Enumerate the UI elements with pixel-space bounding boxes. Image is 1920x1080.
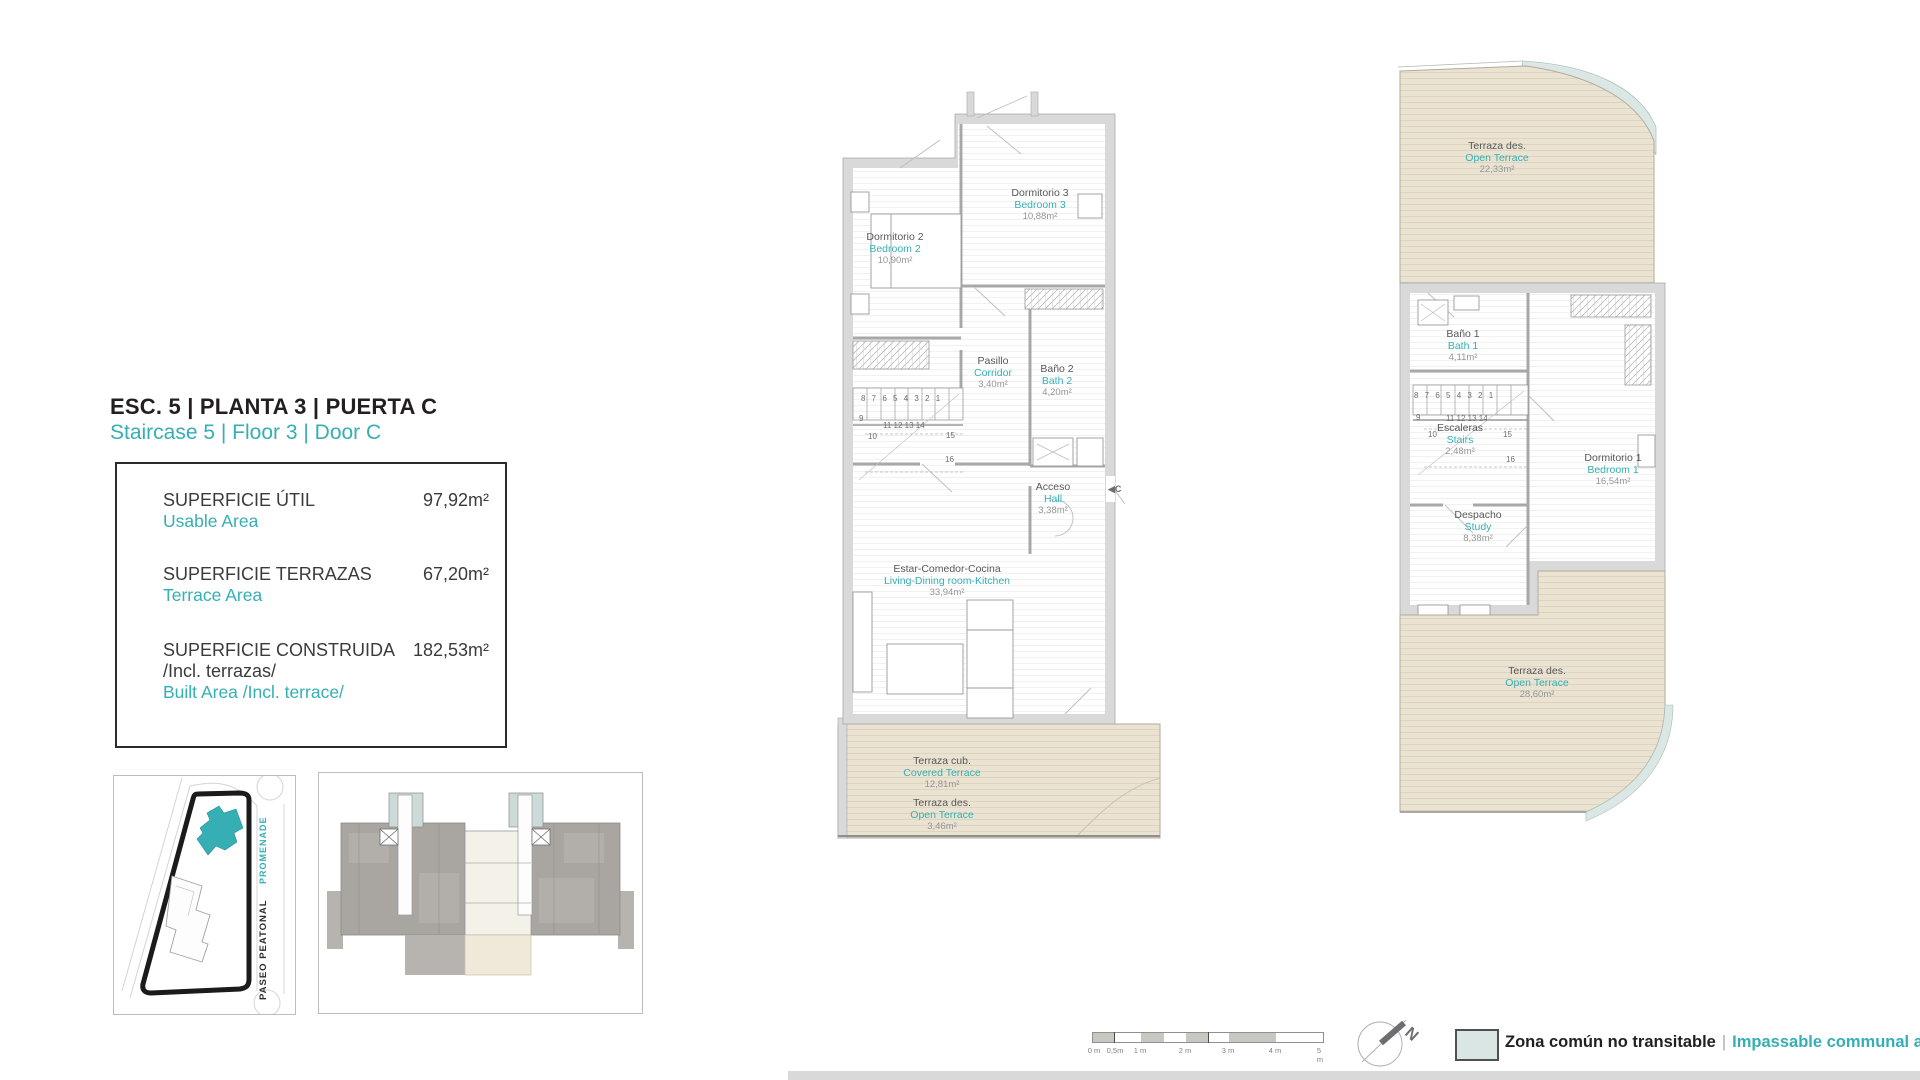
scale-label-4m: 4 m: [1269, 1046, 1282, 1055]
sideboard: [853, 592, 872, 692]
scale-label-05m: 0,5m: [1107, 1046, 1124, 1055]
usable-area-row: SUPERFICIE ÚTIL Usable Area 97,92m²: [163, 490, 489, 532]
room-label-bath1: Baño 1 Bath 1 4,11m²: [1446, 329, 1479, 364]
communal-area-swatch: [1455, 1029, 1499, 1061]
entrance-door-c-icon: ◀C: [1108, 484, 1121, 495]
terrace-area-fill: [838, 724, 1160, 838]
room-label-study: Despacho Study 8,38m²: [1454, 510, 1501, 545]
scale-label-5m: 5 m: [1317, 1046, 1323, 1064]
scale-label-0m: 0 m: [1088, 1046, 1101, 1055]
stair-numbers-top-upper: 8 7 6 5 4 3 2 1: [1414, 391, 1514, 400]
room-label-open-terrace: Terraza des. Open Terrace 3,46m²: [910, 798, 973, 833]
legend-separator: |: [1716, 1033, 1732, 1051]
stair-numbers-mid-upper: 11 12 13 14: [1446, 414, 1488, 423]
stair-number-15: 15: [946, 431, 955, 440]
upper-floor-plan: Terraza des. Open Terrace 22,33m² Baño 1…: [1388, 55, 1728, 850]
terrace-area-value: 67,20m²: [423, 564, 489, 585]
room-label-open-terrace-bottom: Terraza des. Open Terrace 28,60m²: [1505, 666, 1568, 701]
room-label-hall: Acceso Hall 3,38m²: [1036, 482, 1070, 517]
key-plan-drawing: [319, 773, 642, 1013]
surface-areas-box: SUPERFICIE ÚTIL Usable Area 97,92m² SUPE…: [115, 462, 507, 748]
usable-area-value: 97,92m²: [423, 490, 489, 511]
stair-number-16: 16: [945, 455, 954, 464]
site-location-map: PROMENADE PASEO PEATONAL: [113, 775, 296, 1015]
kitchen-island: [967, 600, 1013, 718]
stair-number-10-upper: 10: [1428, 430, 1437, 439]
terrace-area-row: SUPERFICIE TERRAZAS Terrace Area 67,20m²: [163, 564, 489, 606]
room-label-open-terrace-top: Terraza des. Open Terrace 22,33m²: [1465, 141, 1528, 176]
page-title: ESC. 5 | PLANTA 3 | PUERTA C: [110, 394, 437, 420]
scale-label-1m: 1 m: [1134, 1046, 1147, 1055]
left-stair-core: [398, 795, 412, 915]
floor-plan-sheet: ESC. 5 | PLANTA 3 | PUERTA C Staircase 5…: [0, 0, 1920, 1080]
room-label-corridor: Pasillo Corridor 3,40m²: [974, 356, 1012, 391]
room-label-covered-terrace: Terraza cub. Covered Terrace 12,81m²: [903, 756, 980, 791]
building-key-plan: [318, 772, 643, 1014]
wardrobe-bedroom1-top: [1571, 295, 1651, 317]
stair-number-10: 10: [868, 432, 877, 441]
north-letter: N: [1401, 1024, 1421, 1044]
stair-number-15-upper: 15: [1503, 430, 1512, 439]
lower-floor-plan-drawing: [825, 88, 1165, 850]
stair-numbers-top: 8 7 6 5 4 3 2 1: [861, 394, 961, 403]
north-arrow-icon: N: [1352, 1014, 1432, 1074]
wardrobe-bedroom3: [1025, 289, 1103, 309]
bottom-divider-strip: [788, 1071, 1920, 1080]
sink-bath1: [1454, 296, 1479, 310]
stair-number-9-upper: 9: [1416, 413, 1420, 422]
wardrobe-bedroom1-side: [1625, 325, 1651, 385]
terrace-area-label-en: Terrace Area: [163, 585, 489, 606]
page-subtitle: Staircase 5 | Floor 3 | Door C: [110, 421, 381, 445]
room-label-bedroom2: Dormitorio 2 Bedroom 2 10,90m²: [866, 232, 923, 267]
closet-bedroom3: [1078, 194, 1102, 218]
toilet-bath2: [1077, 438, 1103, 466]
right-stair-core: [518, 795, 532, 915]
lower-floor-plan: Dormitorio 2 Bedroom 2 10,90m² Dormitori…: [825, 88, 1165, 850]
stair-number-16-upper: 16: [1506, 455, 1515, 464]
dining-table: [887, 644, 963, 694]
usable-area-label-en: Usable Area: [163, 511, 489, 532]
room-label-bedroom1: Dormitorio 1 Bedroom 1 16,54m²: [1584, 453, 1641, 488]
legend-label-es: Zona común no transitable: [1505, 1033, 1716, 1051]
stair-numbers-mid: 11 12 13 14: [883, 421, 925, 430]
scale-label-3m: 3 m: [1222, 1046, 1235, 1055]
scale-bar: 0 m 0,5m 1 m 2 m 3 m 4 m 5 m: [1092, 1032, 1324, 1058]
room-label-bath2: Baño 2 Bath 2 4,20m²: [1040, 364, 1073, 399]
room-label-bedroom3: Dormitorio 3 Bedroom 3 10,88m²: [1011, 188, 1068, 223]
built-area-row: SUPERFICIE CONSTRUIDA /Incl. terrazas/ B…: [163, 640, 489, 703]
built-area-value: 182,53m²: [413, 640, 489, 661]
scale-label-2m: 2 m: [1179, 1046, 1192, 1055]
street-label-promenade: PROMENADE: [258, 794, 268, 884]
key-plan-terrace-beige: [465, 935, 531, 975]
stair-number-9: 9: [859, 414, 863, 423]
room-label-stairs: Escaleras Stairs 2,48m²: [1437, 423, 1483, 458]
room-label-living: Estar-Comedor-Cocina Living-Dining room-…: [884, 564, 1010, 599]
built-area-label-es-2: /Incl. terrazas/: [163, 661, 489, 682]
key-plan-terrace-gray: [405, 935, 465, 975]
built-area-label-en: Built Area /Incl. terrace/: [163, 682, 489, 703]
street-label-paseo-peatonal: PASEO PEATONAL: [258, 888, 269, 1000]
legend-label-en: Impassable communal area: [1732, 1033, 1920, 1051]
wardrobe-bedroom2: [853, 341, 929, 369]
